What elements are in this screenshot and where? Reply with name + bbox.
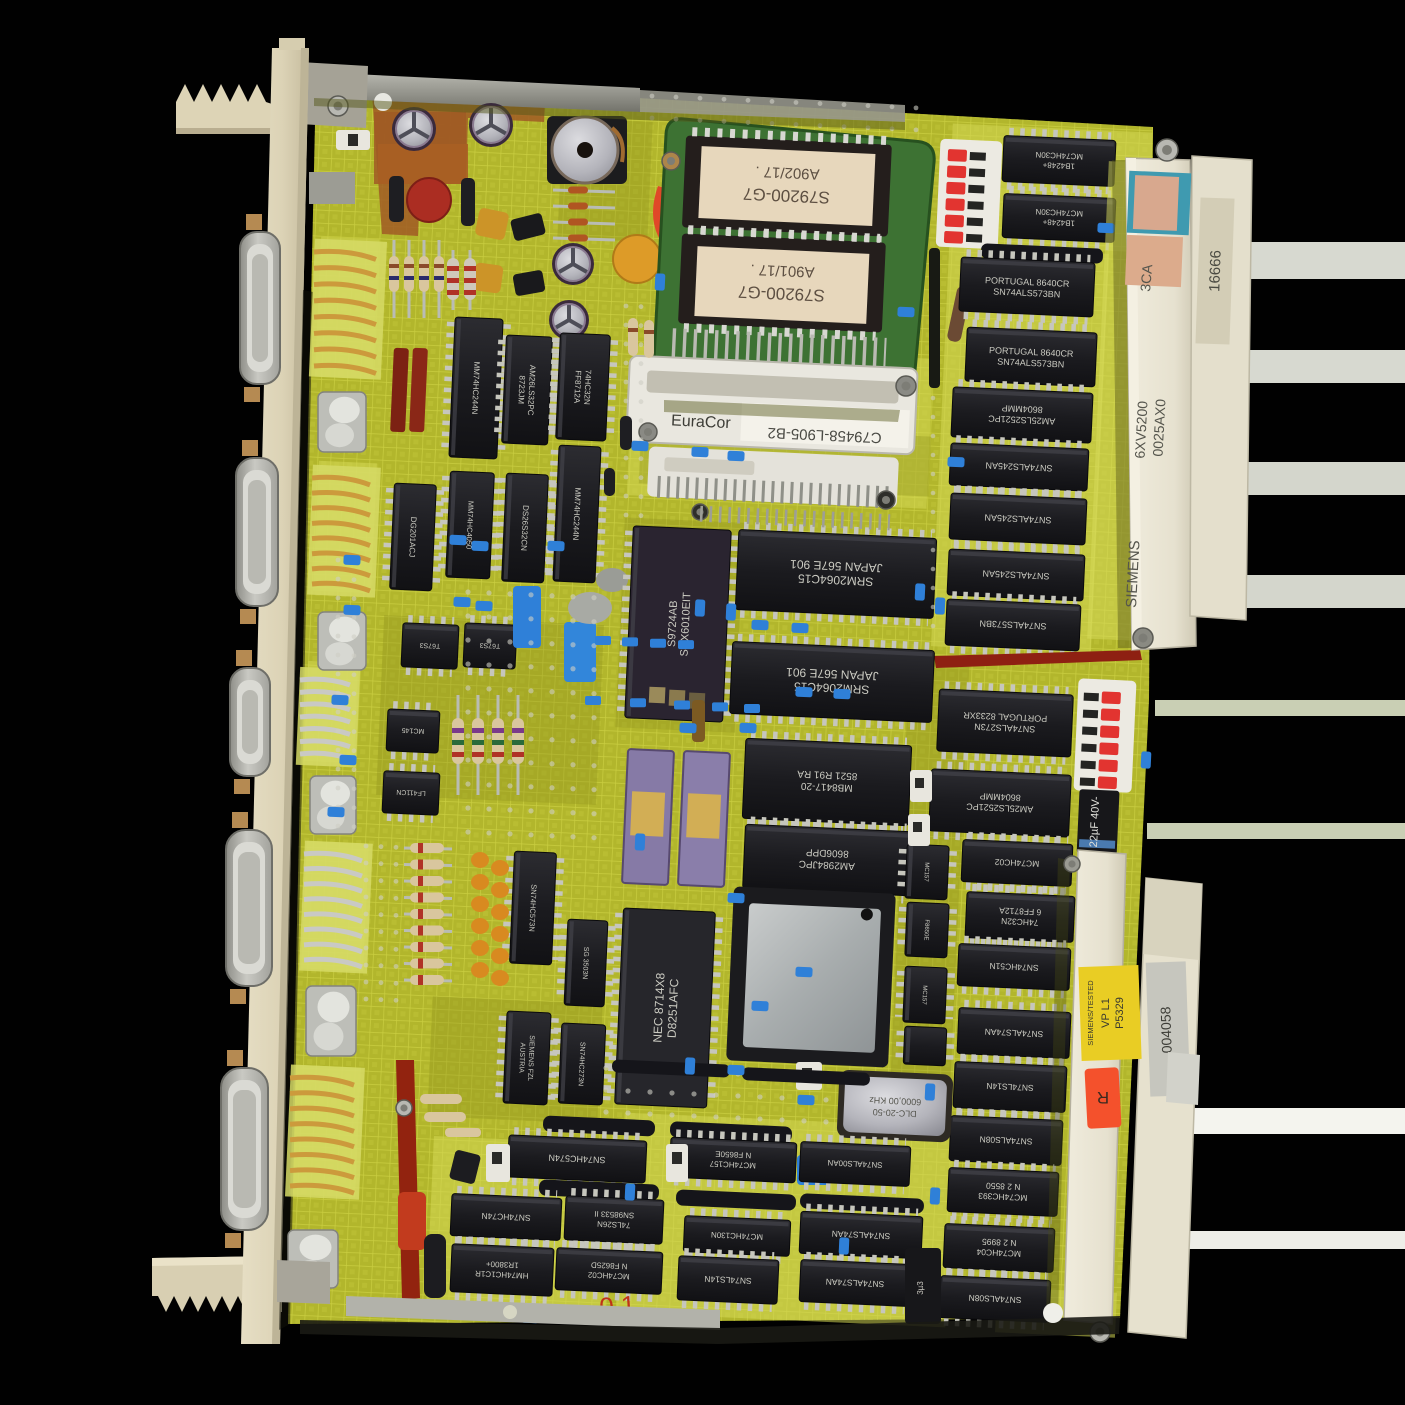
svg-text:6 FF8712A: 6 FF8712A xyxy=(999,906,1042,918)
svg-text:SG 3503N: SG 3503N xyxy=(581,946,589,979)
svg-text:SIEMENS: SIEMENS xyxy=(1123,540,1144,608)
svg-text:1B4248+: 1B4248+ xyxy=(1042,217,1075,227)
svg-text:D8251AFC: D8251AFC xyxy=(665,978,682,1038)
svg-text:LF411CN: LF411CN xyxy=(396,788,426,796)
svg-text:A901/17 .: A901/17 . xyxy=(750,261,815,281)
svg-text:MC145: MC145 xyxy=(402,726,425,734)
svg-text:FF8712A: FF8712A xyxy=(572,370,583,404)
svg-text:004058: 004058 xyxy=(1157,1006,1175,1053)
svg-text:EuraCor: EuraCor xyxy=(671,412,732,432)
svg-text:8606DPP: 8606DPP xyxy=(805,846,849,859)
svg-text:SN74LS14N: SN74LS14N xyxy=(986,1081,1034,1093)
svg-text:1R3800+: 1R3800+ xyxy=(485,1259,518,1269)
svg-text:8723JM: 8723JM xyxy=(516,375,526,404)
svg-text:N 2 8550: N 2 8550 xyxy=(986,1181,1021,1193)
svg-text:3µ3: 3µ3 xyxy=(916,1281,925,1295)
svg-text:8604MMP: 8604MMP xyxy=(1002,403,1043,415)
svg-text:SN74LS14N: SN74LS14N xyxy=(704,1274,752,1286)
svg-text:VP L1: VP L1 xyxy=(1100,998,1112,1028)
svg-text:MC74HC02: MC74HC02 xyxy=(587,1270,630,1281)
svg-text:0025AX0: 0025AX0 xyxy=(1150,398,1169,457)
svg-text:DLC-20-50: DLC-20-50 xyxy=(872,1107,916,1119)
svg-text:F8650E: F8650E xyxy=(922,919,929,940)
svg-text:S79200-G7: S79200-G7 xyxy=(738,282,826,305)
svg-text:MC157: MC157 xyxy=(920,985,927,1005)
svg-text:S9724AB: S9724AB xyxy=(666,600,680,647)
svg-text:A902/17 .: A902/17 . xyxy=(755,163,820,183)
svg-text:S79200-G7: S79200-G7 xyxy=(743,184,831,207)
svg-text:DG201ACJ: DG201ACJ xyxy=(407,517,418,558)
svg-text:MC74HC02: MC74HC02 xyxy=(994,857,1039,869)
svg-text:SIEMENS/TESTED: SIEMENS/TESTED xyxy=(1086,980,1095,1046)
svg-text:N F8625D: N F8625D xyxy=(591,1260,628,1271)
svg-text:N F8650E: N F8650E xyxy=(715,1149,751,1160)
svg-text:SN98533 II: SN98533 II xyxy=(594,1209,634,1220)
svg-text:6XV5200: 6XV5200 xyxy=(1132,400,1151,459)
svg-text:R: R xyxy=(1097,1088,1109,1107)
svg-text:74LS26N: 74LS26N xyxy=(597,1219,631,1230)
svg-text:AUSTRIA: AUSTRIA xyxy=(517,1042,525,1073)
svg-text:P5329: P5329 xyxy=(1114,997,1126,1029)
svg-text:1B4248+: 1B4248+ xyxy=(1042,160,1075,170)
svg-text:3CA: 3CA xyxy=(1137,263,1155,292)
svg-text:74HC32N: 74HC32N xyxy=(582,369,593,405)
svg-text:MC157: MC157 xyxy=(922,862,929,882)
svg-text:8604MMP: 8604MMP xyxy=(980,791,1021,803)
svg-text:16666: 16666 xyxy=(1206,250,1224,292)
svg-text:T67S3: T67S3 xyxy=(419,641,440,649)
svg-text:22µF 40V-: 22µF 40V- xyxy=(1088,796,1102,848)
svg-text:N 2 8995: N 2 8995 xyxy=(982,1237,1017,1249)
